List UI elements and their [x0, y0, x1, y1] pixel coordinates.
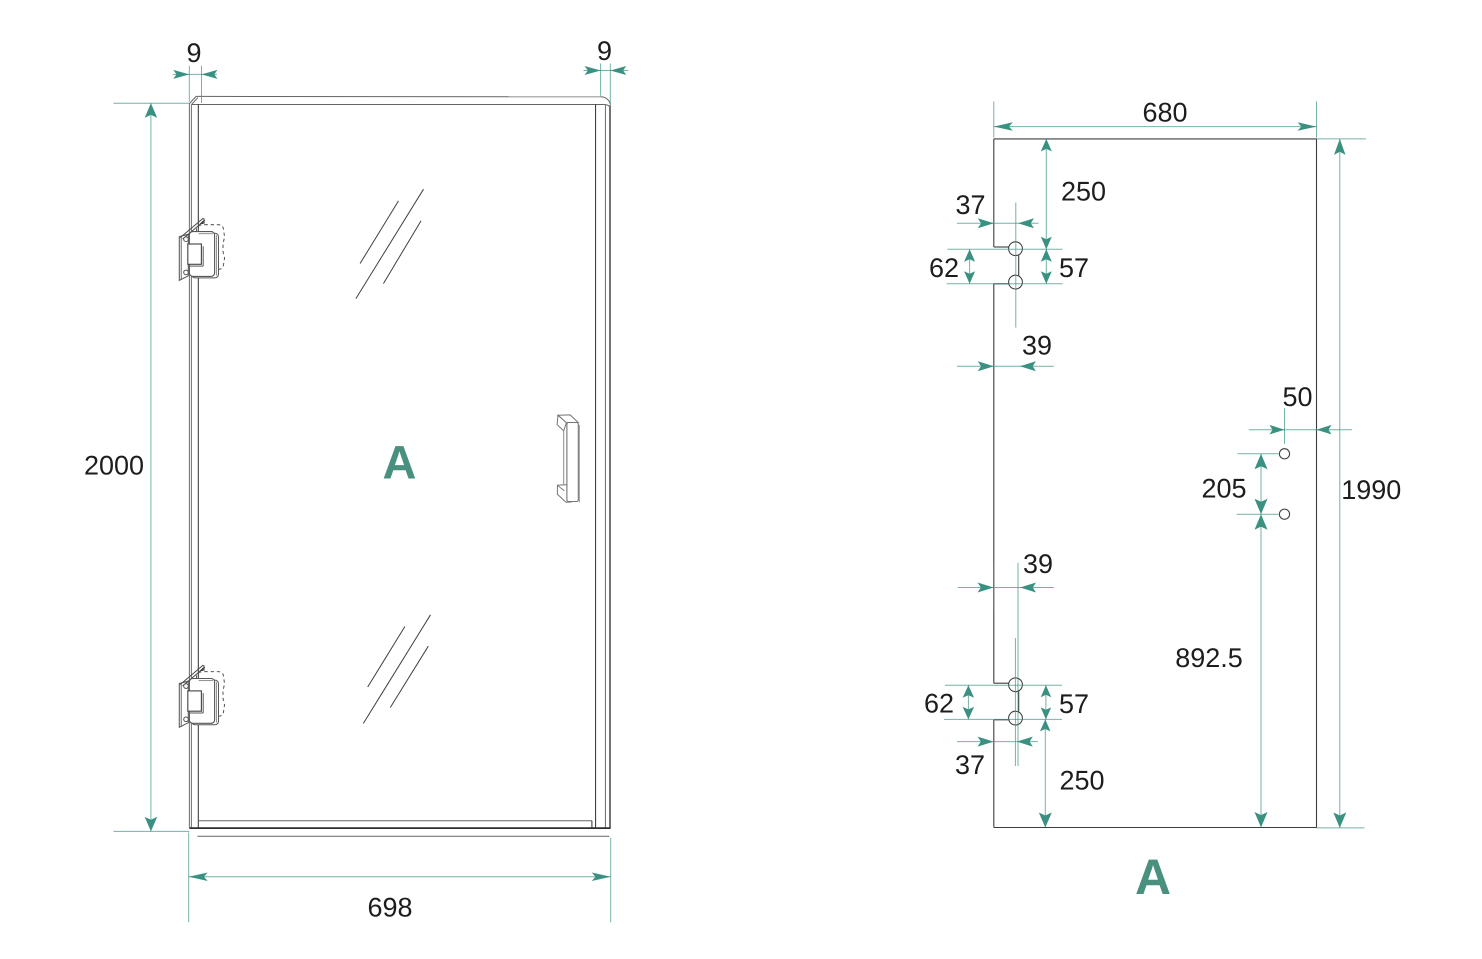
svg-text:37: 37: [955, 190, 985, 220]
svg-text:2000: 2000: [84, 450, 144, 480]
svg-text:250: 250: [1061, 176, 1106, 206]
svg-text:680: 680: [1142, 97, 1187, 127]
svg-text:A: A: [383, 436, 417, 489]
svg-text:57: 57: [1059, 689, 1089, 719]
svg-text:62: 62: [929, 253, 959, 283]
svg-text:9: 9: [597, 36, 612, 66]
svg-text:250: 250: [1059, 765, 1104, 795]
svg-text:57: 57: [1059, 253, 1089, 283]
svg-text:892.5: 892.5: [1175, 643, 1243, 673]
svg-text:1990: 1990: [1341, 475, 1401, 505]
svg-text:50: 50: [1282, 382, 1312, 412]
svg-text:A: A: [1135, 849, 1171, 905]
svg-text:39: 39: [1023, 549, 1053, 579]
svg-text:9: 9: [186, 38, 201, 68]
svg-text:698: 698: [367, 893, 412, 923]
svg-text:205: 205: [1201, 473, 1246, 503]
svg-text:37: 37: [955, 750, 985, 780]
svg-text:62: 62: [924, 688, 954, 718]
svg-text:39: 39: [1022, 330, 1052, 360]
